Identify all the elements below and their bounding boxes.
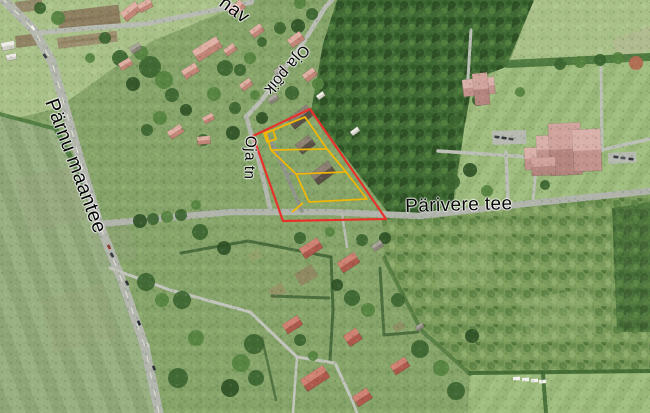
road-label-parivere-tee: Pärivere tee: [405, 194, 513, 216]
parcel-divider-yellow[interactable]: [271, 149, 327, 150]
road-label-oja-tn: Oja tn: [241, 135, 258, 179]
map-canvas[interactable]: Pärnu maantee nav Oja põik Oja tn Pärive…: [0, 0, 650, 413]
